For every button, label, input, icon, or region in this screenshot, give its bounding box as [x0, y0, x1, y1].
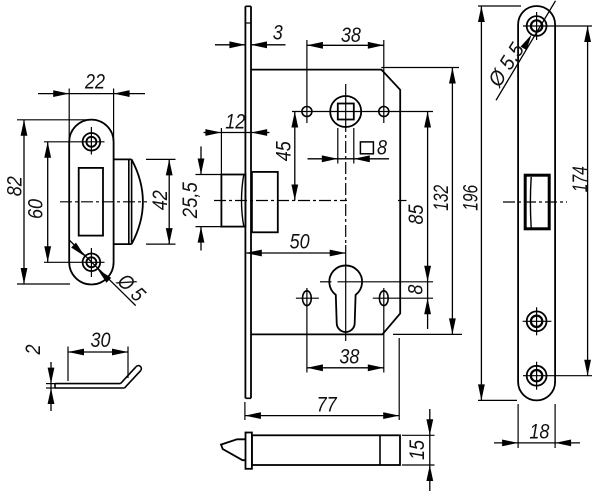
svg-text:42: 42 — [149, 190, 172, 210]
svg-text:45: 45 — [273, 141, 296, 161]
svg-text:25,5: 25,5 — [179, 182, 202, 219]
svg-text:3: 3 — [273, 22, 283, 45]
svg-text:174: 174 — [569, 166, 592, 192]
svg-text:8: 8 — [377, 136, 387, 159]
svg-text:12: 12 — [225, 110, 245, 133]
svg-text:8: 8 — [405, 284, 428, 294]
svg-text:50: 50 — [290, 231, 310, 254]
svg-text:60: 60 — [25, 199, 48, 219]
svg-text:77: 77 — [317, 394, 338, 417]
svg-text:2: 2 — [22, 344, 45, 355]
svg-text:18: 18 — [529, 420, 549, 443]
svg-text:82: 82 — [4, 176, 27, 196]
svg-text:15: 15 — [406, 440, 429, 460]
svg-text:132: 132 — [430, 185, 453, 211]
svg-text:196: 196 — [460, 185, 483, 211]
svg-text:22: 22 — [84, 70, 105, 93]
svg-text:85: 85 — [405, 204, 428, 224]
svg-text:Ø 5: Ø 5 — [112, 269, 150, 307]
svg-text:38: 38 — [341, 24, 361, 47]
svg-text:30: 30 — [91, 329, 111, 352]
svg-text:38: 38 — [339, 345, 359, 368]
